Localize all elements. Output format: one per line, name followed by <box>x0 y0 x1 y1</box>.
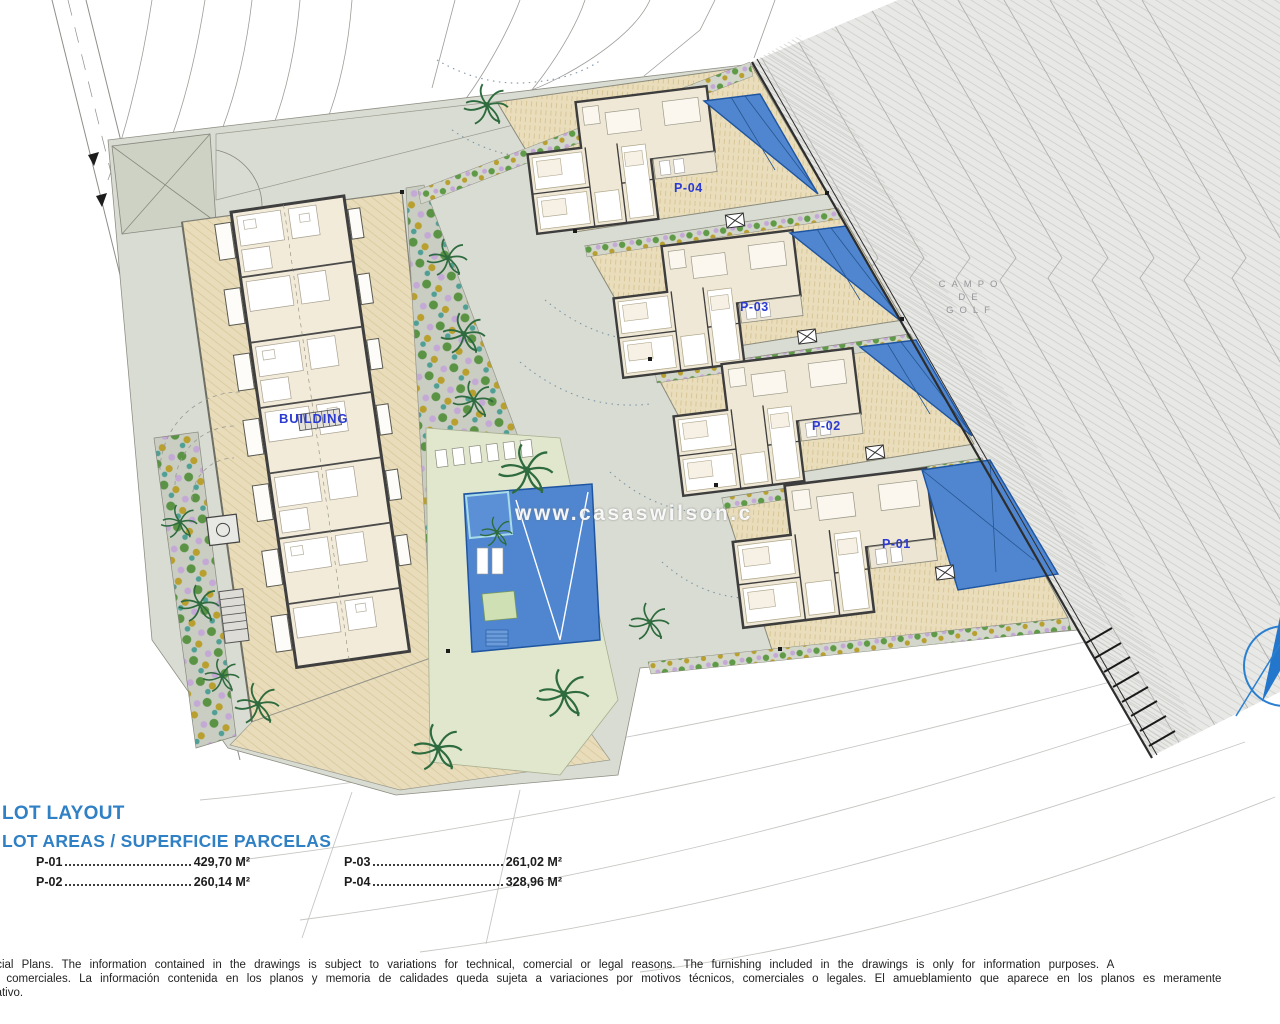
dot-leader <box>373 883 502 886</box>
area-row-p02: P-02 260,14 M² <box>36 875 250 889</box>
area-label: P-03 <box>344 855 370 869</box>
dot-leader <box>65 883 190 886</box>
area-row-p01: P-01 429,70 M² <box>36 855 250 869</box>
golf-label-line3: GOLF <box>916 304 1026 317</box>
dot-leader <box>373 863 502 866</box>
plot-label-p02: P-02 <box>812 419 841 433</box>
plot-layout-page: { "plan": { "watermark": "www.casaswilso… <box>0 0 1280 1024</box>
area-value: 429,70 M² <box>194 855 250 869</box>
area-value: 328,96 M² <box>506 875 562 889</box>
golf-label-line2: DE <box>916 291 1026 304</box>
legend-subtitle: LOT AREAS / SUPERFICIE PARCELAS <box>2 831 331 852</box>
golf-label-line1: CAMPO <box>916 278 1026 291</box>
area-value: 261,02 M² <box>506 855 562 869</box>
legend-title: LOT LAYOUT <box>2 803 125 825</box>
utility-box <box>206 514 239 545</box>
disclaimer-line3: mativo. <box>0 986 23 1000</box>
area-row-p04: P-04 328,96 M² <box>344 875 562 889</box>
watermark: www.casaswilson.c <box>515 502 753 526</box>
golf-course-label: CAMPO DE GOLF <box>916 278 1026 317</box>
area-row-p03: P-03 261,02 M² <box>344 855 562 869</box>
area-value: 260,14 M² <box>194 875 250 889</box>
dot-leader <box>65 863 190 866</box>
area-label: P-04 <box>344 875 370 889</box>
disclaimer-line1: ercial Plans. The information contained … <box>0 958 1114 972</box>
plot-label-p04: P-04 <box>674 181 703 195</box>
building-label: BUILDING <box>279 411 348 426</box>
disclaimer-line2: os comerciales. La información contenida… <box>0 972 1221 986</box>
area-label: P-01 <box>36 855 62 869</box>
plot-label-p03: P-03 <box>740 300 769 314</box>
plot-label-p01: P-01 <box>882 537 911 551</box>
area-label: P-02 <box>36 875 62 889</box>
